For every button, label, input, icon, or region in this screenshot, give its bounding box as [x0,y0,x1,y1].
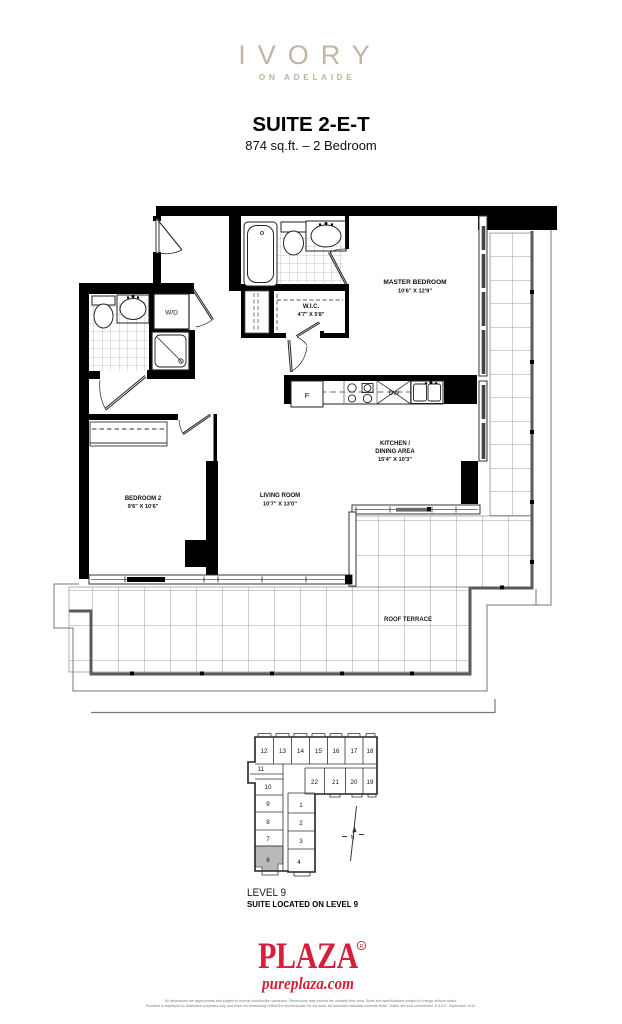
svg-text:9'6" X 10'6": 9'6" X 10'6" [128,504,159,510]
svg-text:DW: DW [389,390,401,397]
svg-text:LIVING ROOM: LIVING ROOM [260,493,300,499]
svg-text:10'7" X 13'0": 10'7" X 13'0" [263,502,297,508]
svg-text:6: 6 [266,857,270,864]
svg-text:4: 4 [297,859,301,866]
svg-text:SUITE 2-E-T: SUITE 2-E-T [252,113,370,136]
svg-text:MASTER BEDROOM: MASTER BEDROOM [383,279,446,286]
svg-text:10'6" X 12'9": 10'6" X 12'9" [398,289,432,295]
svg-text:17: 17 [351,748,358,755]
svg-text:BEDROOM 2: BEDROOM 2 [125,496,162,502]
svg-text:15: 15 [315,748,322,755]
svg-text:15'4" X 10'3": 15'4" X 10'3" [378,457,412,463]
svg-text:9: 9 [266,801,270,808]
svg-text:14: 14 [297,748,304,755]
svg-text:R: R [360,944,364,950]
svg-text:SUITE LOCATED ON LEVEL 9: SUITE LOCATED ON LEVEL 9 [247,899,358,909]
svg-text:ROOF TERRACE: ROOF TERRACE [384,617,432,623]
svg-text:LEVEL 9: LEVEL 9 [247,887,286,899]
svg-text:pureplaza.com: pureplaza.com [260,974,354,993]
svg-text:7: 7 [266,836,270,843]
svg-text:N: N [351,835,355,841]
svg-text:2: 2 [299,820,303,827]
svg-text:19: 19 [367,779,374,786]
svg-text:3: 3 [299,838,303,845]
svg-text:16: 16 [333,748,340,755]
svg-text:PLAZA: PLAZA [258,936,359,977]
svg-text:4'7" X 5'8": 4'7" X 5'8" [298,312,325,318]
svg-text:10: 10 [265,784,272,791]
svg-text:22: 22 [311,779,318,786]
svg-text:Furniture is displayed for ill: Furniture is displayed for illustration … [146,1004,476,1008]
svg-text:20: 20 [351,779,358,786]
svg-text:DINING AREA: DINING AREA [375,449,415,455]
svg-text:11: 11 [258,766,265,773]
svg-text:8: 8 [266,819,270,826]
svg-text:ON ADELAIDE: ON ADELAIDE [259,72,356,82]
svg-text:18: 18 [367,748,374,755]
svg-text:W/D: W/D [165,310,178,317]
svg-text:12: 12 [261,748,268,755]
svg-text:All dimensions are approximate: All dimensions are approximate and subje… [165,999,458,1003]
svg-text:W.I.C.: W.I.C. [303,304,320,310]
svg-text:KITCHEN /: KITCHEN / [380,441,410,447]
svg-text:1: 1 [299,802,303,809]
svg-text:21: 21 [332,779,339,786]
svg-text:F: F [305,391,310,400]
svg-text:13: 13 [279,748,286,755]
svg-text:IVORY: IVORY [238,40,382,70]
svg-text:874 sq.ft. – 2 Bedroom: 874 sq.ft. – 2 Bedroom [245,138,377,153]
